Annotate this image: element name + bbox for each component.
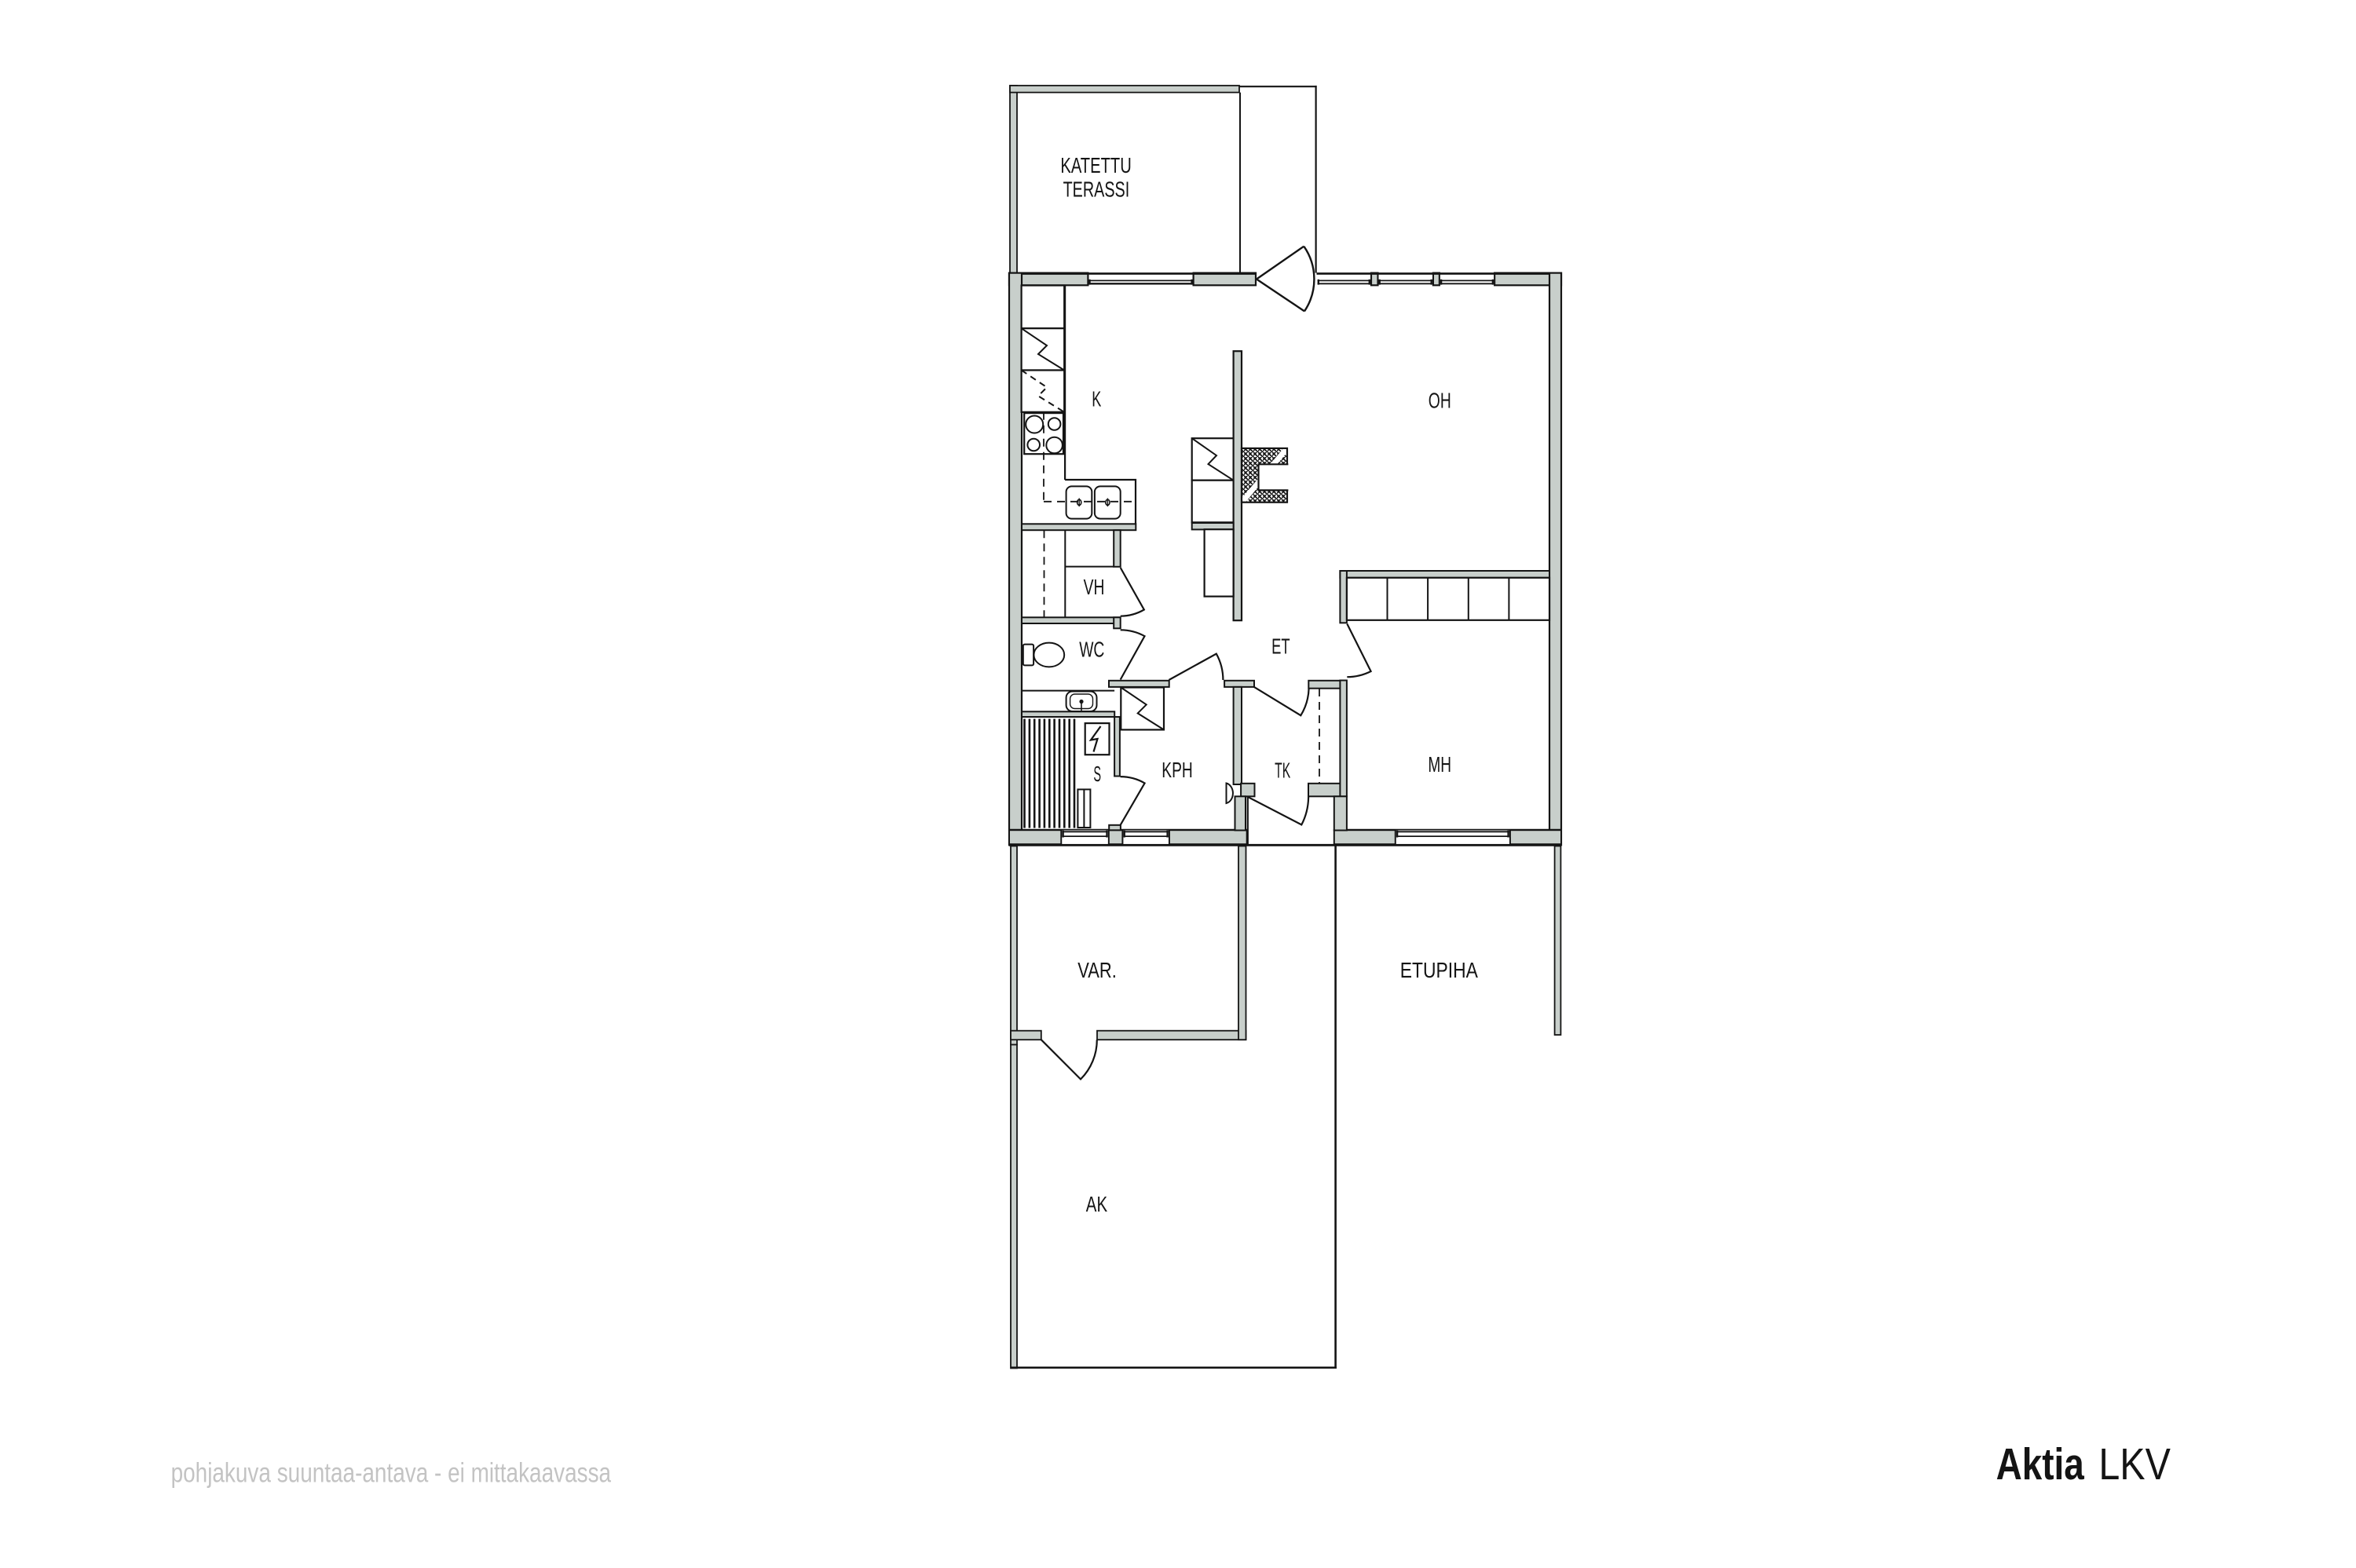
svg-text:K: K bbox=[1092, 387, 1101, 411]
svg-text:MH: MH bbox=[1428, 752, 1451, 777]
svg-text:OH: OH bbox=[1429, 388, 1451, 412]
svg-text:WC: WC bbox=[1079, 638, 1104, 662]
svg-text:LKV: LKV bbox=[2098, 1439, 2171, 1489]
svg-text:pohjakuva suuntaa-antava - ei: pohjakuva suuntaa-antava - ei mittakaava… bbox=[171, 1457, 612, 1488]
svg-text:TK: TK bbox=[1275, 758, 1290, 783]
svg-text:VAR.: VAR. bbox=[1077, 958, 1117, 982]
svg-text:VH: VH bbox=[1084, 575, 1105, 599]
svg-text:TERASSI: TERASSI bbox=[1063, 177, 1130, 202]
svg-text:KATETTU: KATETTU bbox=[1060, 153, 1131, 177]
svg-text:Aktia: Aktia bbox=[1996, 1439, 2085, 1489]
svg-text:KPH: KPH bbox=[1162, 758, 1193, 782]
svg-text:AK: AK bbox=[1086, 1192, 1108, 1216]
svg-text:ET: ET bbox=[1271, 634, 1290, 659]
svg-text:ETUPIHA: ETUPIHA bbox=[1400, 958, 1478, 982]
svg-text:S: S bbox=[1093, 762, 1101, 786]
